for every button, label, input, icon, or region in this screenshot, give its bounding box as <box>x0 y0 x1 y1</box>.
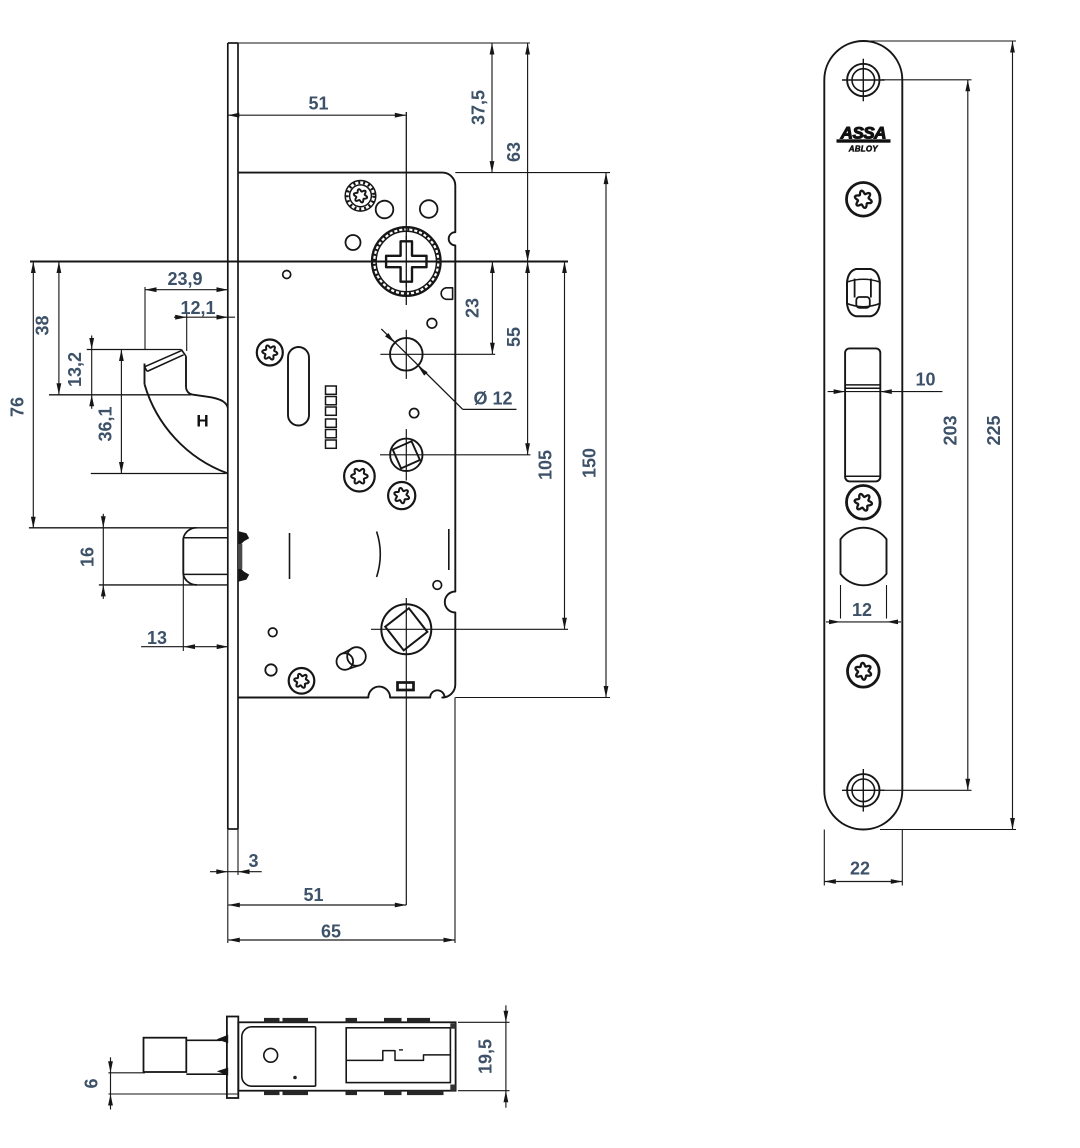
svg-text:38: 38 <box>33 315 53 335</box>
svg-text:37,5: 37,5 <box>469 90 489 125</box>
svg-text:225: 225 <box>984 415 1004 445</box>
svg-text:22: 22 <box>850 859 870 879</box>
svg-text:6: 6 <box>82 1078 102 1088</box>
svg-text:3: 3 <box>248 851 258 871</box>
svg-text:51: 51 <box>308 94 328 114</box>
svg-text:65: 65 <box>321 922 341 942</box>
svg-text:ABLOY: ABLOY <box>848 145 878 154</box>
svg-text:13,2: 13,2 <box>65 352 85 387</box>
svg-text:63: 63 <box>504 142 524 162</box>
svg-text:23: 23 <box>463 298 483 318</box>
svg-text:12: 12 <box>852 600 872 620</box>
svg-text:51: 51 <box>303 885 323 905</box>
svg-text:Ø 12: Ø 12 <box>473 389 512 409</box>
svg-text:13: 13 <box>147 628 167 648</box>
svg-text:76: 76 <box>8 397 28 417</box>
svg-text:55: 55 <box>504 327 524 347</box>
svg-text:12,1: 12,1 <box>180 298 215 318</box>
svg-text:23,9: 23,9 <box>167 269 202 289</box>
svg-text:16: 16 <box>78 547 98 567</box>
svg-text:150: 150 <box>580 448 600 478</box>
svg-text:10: 10 <box>915 370 935 390</box>
svg-text:105: 105 <box>536 450 556 480</box>
svg-text:H: H <box>196 412 208 431</box>
svg-text:203: 203 <box>941 415 961 445</box>
svg-text:36,1: 36,1 <box>96 406 116 441</box>
svg-text:19,5: 19,5 <box>476 1039 496 1074</box>
